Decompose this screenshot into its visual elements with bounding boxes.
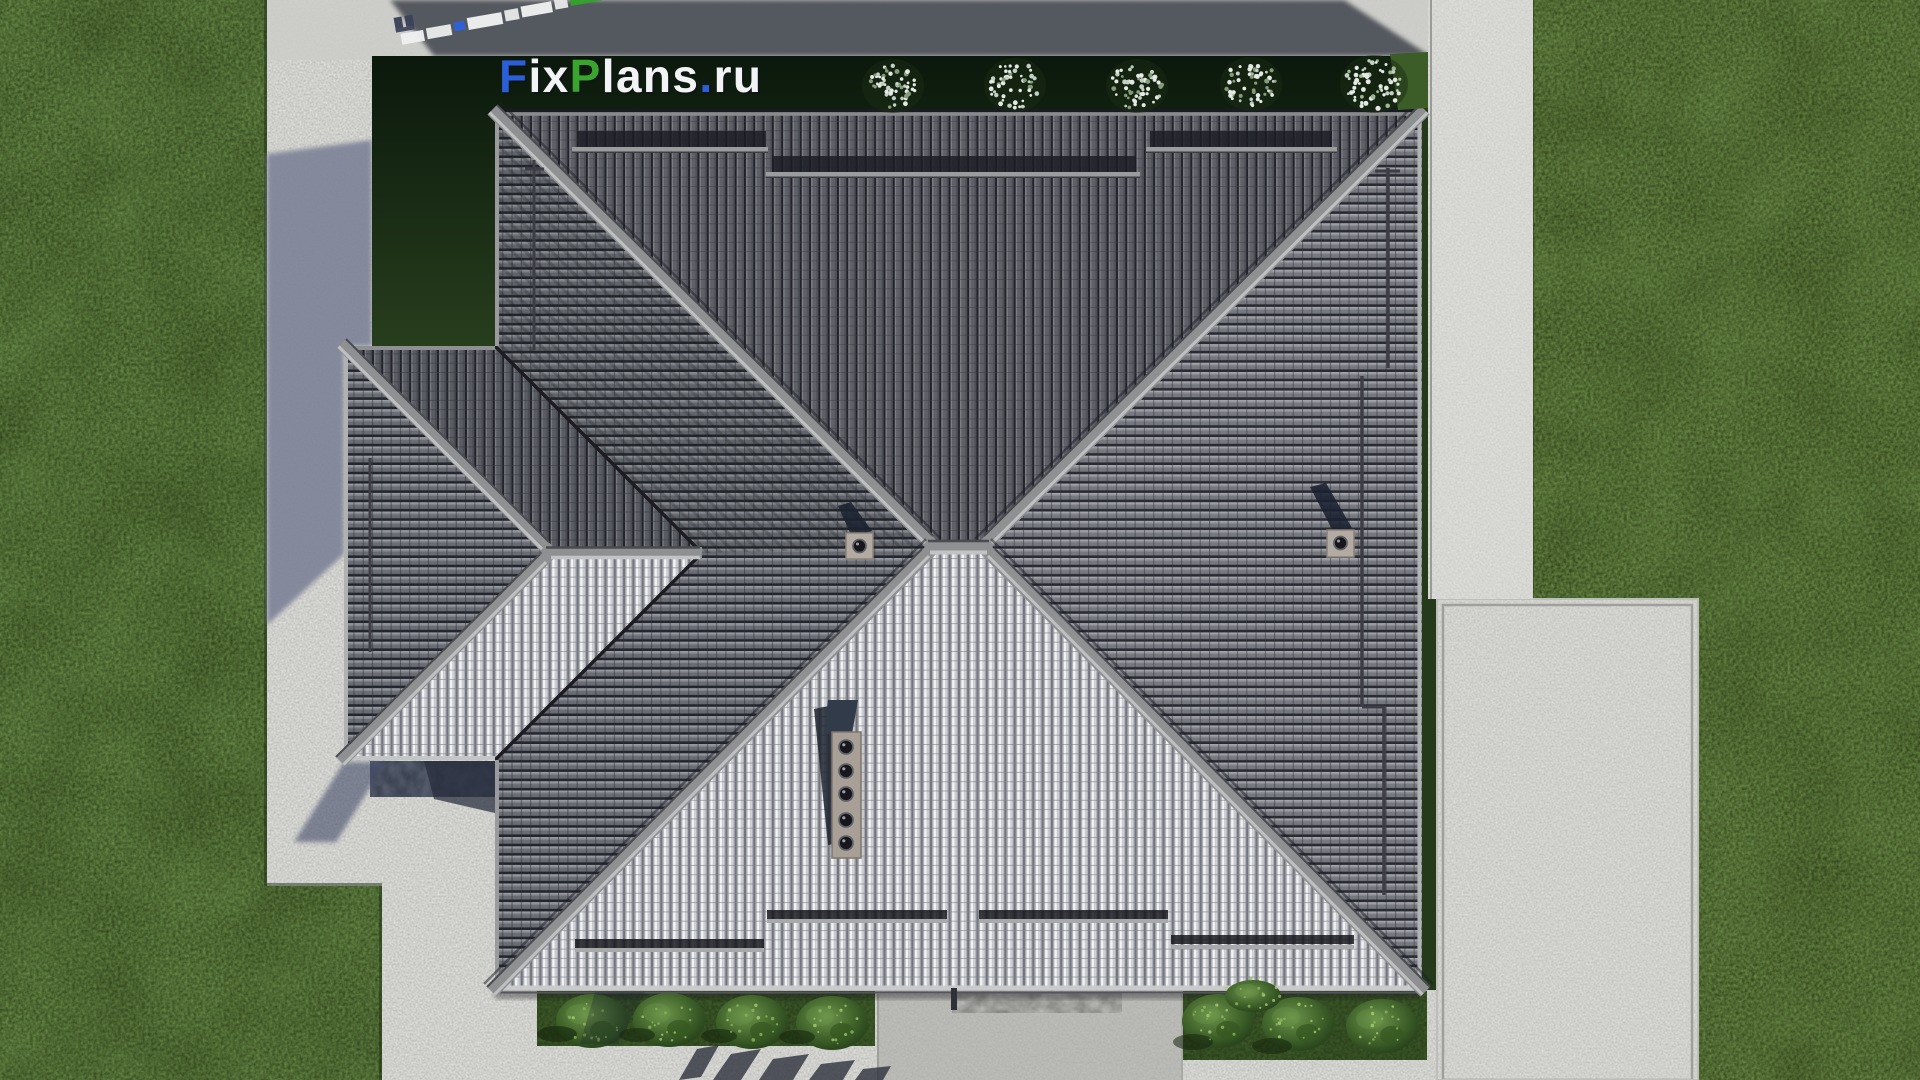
svg-text:FixPlans.ru: FixPlans.ru — [499, 50, 762, 102]
